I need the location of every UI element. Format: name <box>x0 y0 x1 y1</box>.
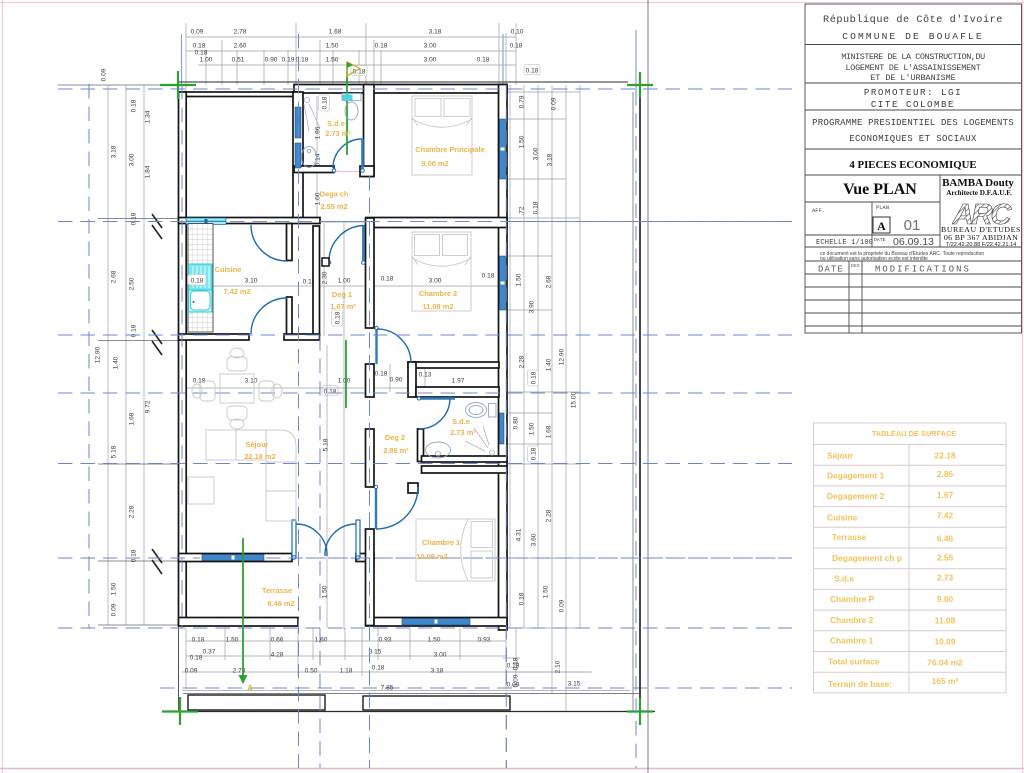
svg-text:MODIFICATIONS: MODIFICATIONS <box>875 265 971 275</box>
svg-text:Cuisine: Cuisine <box>827 513 858 523</box>
svg-text:0.09: 0.09 <box>185 667 198 674</box>
svg-text:9.00: 9.00 <box>937 594 954 604</box>
svg-text:7.42 m2: 7.42 m2 <box>223 287 250 296</box>
svg-text:9.00 m2: 9.00 m2 <box>421 159 448 168</box>
svg-text:5.18: 5.18 <box>322 438 329 451</box>
svg-text:0.79: 0.79 <box>518 95 525 108</box>
svg-text:2.68: 2.68 <box>110 270 117 283</box>
svg-text:7.42: 7.42 <box>937 511 954 521</box>
svg-text:0.18: 0.18 <box>381 275 394 282</box>
svg-text:0.18: 0.18 <box>191 278 204 285</box>
svg-text:0.90: 0.90 <box>390 376 403 383</box>
svg-text:0.10: 0.10 <box>511 28 524 35</box>
svg-text:2.73: 2.73 <box>937 573 954 583</box>
svg-text:06.09.13: 06.09.13 <box>893 236 934 248</box>
svg-text:11.08 m2: 11.08 m2 <box>423 302 454 311</box>
svg-text:0.09: 0.09 <box>512 674 519 687</box>
svg-text:1.68: 1.68 <box>128 412 135 425</box>
svg-text:0.18: 0.18 <box>195 49 208 56</box>
svg-text:0.18: 0.18 <box>526 67 539 74</box>
svg-text:3.60: 3.60 <box>530 533 537 546</box>
svg-text:0.18: 0.18 <box>193 42 206 49</box>
svg-text:A: A <box>247 684 253 693</box>
svg-text:1.50: 1.50 <box>226 636 239 643</box>
svg-text:1.50: 1.50 <box>321 585 328 598</box>
svg-text:Architecte D.F.A.U.F.: Architecte D.F.A.U.F. <box>946 189 1012 197</box>
svg-text:3.90: 3.90 <box>528 300 535 313</box>
svg-text:Terrasse: Terrasse <box>832 532 867 542</box>
svg-text:2.30: 2.30 <box>321 271 328 284</box>
svg-text:LOGEMENT DE L'ASSAINISSEMENT: LOGEMENT DE L'ASSAINISSEMENT <box>845 63 980 73</box>
svg-text:0.18: 0.18 <box>375 370 388 377</box>
svg-text:ECHELLE 1/100: ECHELLE 1/100 <box>816 239 873 247</box>
svg-text:2.28: 2.28 <box>518 355 525 368</box>
svg-text:0.93: 0.93 <box>478 636 491 643</box>
svg-text:10.09 m2: 10.09 m2 <box>416 552 447 561</box>
svg-text:1.97: 1.97 <box>452 377 465 384</box>
svg-text:3.00: 3.00 <box>424 42 437 49</box>
svg-text:2.28: 2.28 <box>545 509 552 522</box>
svg-text:3.18: 3.18 <box>110 145 117 158</box>
svg-text:1.40: 1.40 <box>545 358 552 371</box>
svg-text:République de Côte d'Ivoire: République de Côte d'Ivoire <box>823 14 1003 26</box>
svg-text:3.10: 3.10 <box>245 277 258 284</box>
svg-text:76.04 m2: 76.04 m2 <box>927 658 963 668</box>
svg-text:Chambre Principale: Chambre Principale <box>415 145 484 154</box>
svg-text:0.09: 0.09 <box>558 599 565 612</box>
svg-text:Degagement ch p: Degagement ch p <box>832 553 902 563</box>
svg-text:4.31: 4.31 <box>515 528 522 541</box>
svg-text:0.18: 0.18 <box>375 42 388 49</box>
svg-text:1.60: 1.60 <box>315 636 328 643</box>
svg-text:6.46 m2: 6.46 m2 <box>267 599 294 608</box>
svg-text:9.72: 9.72 <box>144 400 151 413</box>
svg-text:0.37: 0.37 <box>203 648 216 655</box>
svg-text:Séjour: Séjour <box>827 451 854 461</box>
svg-text:0.18: 0.18 <box>321 96 328 109</box>
svg-text:PLAN: PLAN <box>876 205 889 211</box>
svg-text:A: A <box>877 219 886 233</box>
svg-text:3.10: 3.10 <box>245 377 258 384</box>
svg-text:2.73 m²: 2.73 m² <box>450 428 476 437</box>
svg-text:1.50: 1.50 <box>542 585 549 598</box>
svg-text:12.90: 12.90 <box>94 346 101 363</box>
svg-text:3.18: 3.18 <box>431 667 444 674</box>
svg-text:ECONOMIQUES ET SOCIAUX: ECONOMIQUES ET SOCIAUX <box>849 134 977 144</box>
svg-text:0.19: 0.19 <box>282 56 295 63</box>
svg-text:0.18: 0.18 <box>530 447 537 460</box>
svg-text:1.50: 1.50 <box>110 582 117 595</box>
svg-text:2.10: 2.10 <box>554 660 561 673</box>
svg-text:7.85: 7.85 <box>381 684 394 691</box>
svg-text:Total surface: Total surface <box>828 657 880 667</box>
svg-text:0.18: 0.18 <box>482 272 495 279</box>
svg-text:2.78: 2.78 <box>234 28 247 35</box>
svg-text:1.00: 1.00 <box>338 377 351 384</box>
svg-text:12.90: 12.90 <box>558 348 565 365</box>
svg-text:3.18: 3.18 <box>546 153 553 166</box>
svg-text:10.09: 10.09 <box>935 637 956 647</box>
svg-text:0.93: 0.93 <box>379 636 392 643</box>
svg-text:Deg 2: Deg 2 <box>385 433 405 442</box>
svg-text:3.00: 3.00 <box>532 147 539 160</box>
svg-text:15.00: 15.00 <box>570 391 577 408</box>
svg-text:0.66: 0.66 <box>271 636 284 643</box>
svg-text:0.18: 0.18 <box>532 201 539 214</box>
svg-text:1.50: 1.50 <box>515 273 522 286</box>
svg-text:5.18: 5.18 <box>110 445 117 458</box>
svg-text:DATE: DATE <box>818 265 844 275</box>
svg-text:Chambre 2: Chambre 2 <box>419 289 457 298</box>
svg-text:COMMUNE DE BOUAFLE: COMMUNE DE BOUAFLE <box>842 31 983 42</box>
svg-text:0.18: 0.18 <box>192 636 205 643</box>
svg-text:Terrain de base:: Terrain de base: <box>828 679 892 689</box>
svg-text:1.18: 1.18 <box>340 667 353 674</box>
svg-text:0.18: 0.18 <box>518 592 525 605</box>
svg-text:1.50: 1.50 <box>528 422 535 435</box>
svg-text:1.68: 1.68 <box>329 28 342 35</box>
svg-text:S.d.e: S.d.e <box>452 417 470 426</box>
svg-text:S.d.e: S.d.e <box>327 119 345 128</box>
svg-text:Chambre 1: Chambre 1 <box>830 636 874 646</box>
svg-text:1.68: 1.68 <box>545 425 552 438</box>
svg-text:0.18: 0.18 <box>477 56 490 63</box>
svg-text:1.50: 1.50 <box>428 636 441 643</box>
svg-text:DATE: DATE <box>874 237 886 243</box>
svg-text:1.34: 1.34 <box>144 110 151 123</box>
svg-text:0.14: 0.14 <box>314 153 321 166</box>
svg-text:0.13: 0.13 <box>419 371 432 378</box>
svg-text:2.60: 2.60 <box>234 42 247 49</box>
svg-text:0.18: 0.18 <box>324 388 337 395</box>
svg-text:0.80: 0.80 <box>512 416 519 429</box>
svg-text:Dega ch: Dega ch <box>320 190 349 199</box>
svg-text:0.09: 0.09 <box>100 68 107 81</box>
svg-text:Chambre P: Chambre P <box>830 594 875 604</box>
svg-text:1.50: 1.50 <box>326 56 339 63</box>
svg-text:0.50: 0.50 <box>305 667 318 674</box>
svg-text:2.55 m2: 2.55 m2 <box>320 202 347 211</box>
svg-text:0.15: 0.15 <box>369 648 382 655</box>
svg-text:Séjour: Séjour <box>246 440 269 449</box>
svg-text:1.86: 1.86 <box>314 126 321 139</box>
svg-text:2.68: 2.68 <box>545 275 552 288</box>
svg-text:ET DE L'URBANISME: ET DE L'URBANISME <box>870 73 955 83</box>
svg-text:Degagement 1: Degagement 1 <box>827 471 885 481</box>
svg-text:2.50: 2.50 <box>128 277 135 290</box>
svg-text:6.46: 6.46 <box>937 534 954 544</box>
svg-text:01: 01 <box>904 217 921 234</box>
svg-text:3.18: 3.18 <box>429 28 442 35</box>
svg-text:0.09: 0.09 <box>110 603 117 616</box>
svg-text:06 BP 367 ABIDJAN: 06 BP 367 ABIDJAN <box>944 233 1018 242</box>
svg-text:Deg 1: Deg 1 <box>332 290 352 299</box>
svg-text:3.15: 3.15 <box>568 680 581 687</box>
svg-text:0.51: 0.51 <box>232 56 245 63</box>
svg-text:3.00: 3.00 <box>128 153 135 166</box>
svg-text:22.18 m2: 22.18 m2 <box>244 452 275 461</box>
svg-text:CITE COLOMBE: CITE COLOMBE <box>871 99 955 110</box>
svg-text:1.67: 1.67 <box>937 490 954 500</box>
svg-text:DES: DES <box>851 263 860 269</box>
svg-text:Cuisine: Cuisine <box>215 265 242 274</box>
svg-text:2.73 m²: 2.73 m² <box>325 129 351 138</box>
svg-text:0.18: 0.18 <box>512 657 519 670</box>
svg-text:2.28: 2.28 <box>128 505 135 518</box>
svg-text:Chambre 1: Chambre 1 <box>422 538 460 547</box>
svg-text:165 m²: 165 m² <box>932 676 959 686</box>
svg-text:3.00: 3.00 <box>424 56 437 63</box>
svg-text:MINISTERE DE LA CONSTRUCTION,D: MINISTERE DE LA CONSTRUCTION,DU <box>841 52 985 62</box>
svg-text:0.18: 0.18 <box>130 212 137 225</box>
svg-text:1.50: 1.50 <box>326 42 339 49</box>
svg-text:0.09: 0.09 <box>550 97 557 110</box>
svg-text:3.00: 3.00 <box>429 277 442 284</box>
svg-text:0.18: 0.18 <box>296 56 309 63</box>
svg-text:AFF.: AFF. <box>812 208 825 214</box>
svg-text:BAMBA Douty: BAMBA Douty <box>942 177 1014 189</box>
svg-text:11.08: 11.08 <box>935 616 956 626</box>
svg-text:1.84: 1.84 <box>144 165 151 178</box>
svg-text:0.18: 0.18 <box>190 654 203 661</box>
svg-text:1.40: 1.40 <box>112 356 119 369</box>
svg-text:TABLEAU DE SURFACE: TABLEAU DE SURFACE <box>872 429 957 438</box>
svg-text:0.90: 0.90 <box>265 56 278 63</box>
svg-text:3.00: 3.00 <box>434 651 447 658</box>
svg-text:0.18: 0.18 <box>130 549 137 562</box>
svg-text:0.18: 0.18 <box>130 99 137 112</box>
svg-text:PROMOTEUR: LGI: PROMOTEUR: LGI <box>864 87 962 98</box>
svg-text:PROGRAMME PRESIDENTIEL DES LOG: PROGRAMME PRESIDENTIEL DES LOGEMENTS <box>812 118 1014 128</box>
svg-text:T/22.42.20.88 F/22.42.21.14: T/22.42.20.88 F/22.42.21.14 <box>946 242 1017 248</box>
svg-text:0.18: 0.18 <box>372 664 385 671</box>
svg-text:Degagement 2: Degagement 2 <box>827 491 885 501</box>
svg-text:S.d.e: S.d.e <box>834 574 854 584</box>
svg-text:Terrasse: Terrasse <box>262 586 292 595</box>
svg-text:1.50: 1.50 <box>518 135 525 148</box>
svg-text:1.67 m²: 1.67 m² <box>330 302 356 311</box>
svg-text:Vue PLAN: Vue PLAN <box>843 181 917 198</box>
svg-text:0.09: 0.09 <box>191 28 204 35</box>
svg-text:4 PIECES ECONOMIQUE: 4 PIECES ECONOMIQUE <box>849 159 976 171</box>
svg-text:Chambre 2: Chambre 2 <box>830 615 874 625</box>
svg-text:2.55: 2.55 <box>937 553 954 563</box>
svg-text:1.00: 1.00 <box>200 56 213 63</box>
svg-text:1.00: 1.00 <box>338 277 351 284</box>
svg-text:0.18: 0.18 <box>334 311 341 324</box>
svg-text:.72: .72 <box>518 206 525 215</box>
svg-text:4.28: 4.28 <box>271 651 284 658</box>
svg-text:22.18: 22.18 <box>935 451 956 461</box>
svg-text:0.18: 0.18 <box>530 371 537 384</box>
svg-text:ou utilisation sans autorisati: ou utilisation sans autorisation ecrite … <box>820 256 928 262</box>
svg-text:2.86: 2.86 <box>937 469 954 479</box>
svg-text:0.18: 0.18 <box>510 42 523 49</box>
svg-text:2.86 m²: 2.86 m² <box>383 446 409 455</box>
